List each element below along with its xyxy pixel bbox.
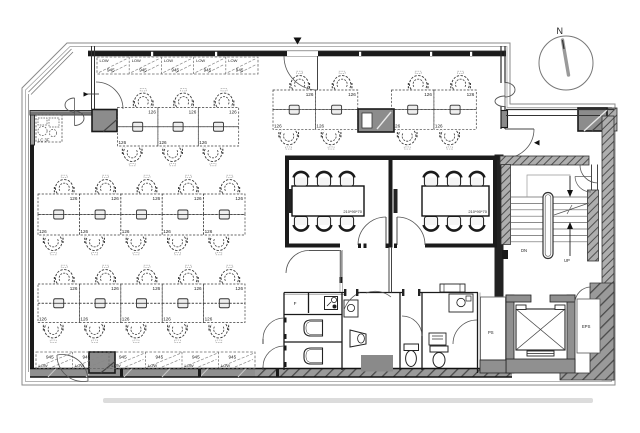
- svg-text:126: 126: [122, 317, 130, 322]
- svg-text:126: 126: [306, 92, 314, 97]
- svg-text:126: 126: [205, 317, 213, 322]
- svg-text:N: N: [557, 26, 564, 36]
- svg-text:LOW: LOW: [221, 363, 230, 368]
- svg-text:LOW: LOW: [196, 58, 205, 63]
- svg-text:LOW: LOW: [185, 363, 194, 368]
- svg-text:LOW: LOW: [112, 363, 121, 368]
- svg-text:126: 126: [205, 229, 213, 234]
- svg-text:DN: DN: [521, 248, 527, 253]
- svg-text:126: 126: [119, 140, 127, 145]
- svg-text:PS: PS: [488, 330, 494, 335]
- svg-text:LOW: LOW: [100, 58, 109, 63]
- svg-text:945: 945: [119, 355, 127, 360]
- svg-text:LOW: LOW: [132, 58, 141, 63]
- svg-text:126: 126: [163, 317, 171, 322]
- svg-text:126: 126: [348, 92, 356, 97]
- svg-text:EPS: EPS: [582, 324, 591, 329]
- svg-text:945: 945: [107, 68, 115, 73]
- svg-text:945: 945: [139, 68, 147, 73]
- svg-text:126: 126: [229, 110, 237, 115]
- svg-text:945: 945: [236, 68, 244, 73]
- svg-text:126: 126: [235, 196, 243, 201]
- svg-text:945: 945: [229, 355, 237, 360]
- svg-text:126: 126: [80, 229, 88, 234]
- svg-text:945: 945: [171, 68, 179, 73]
- svg-text:126: 126: [435, 123, 443, 128]
- svg-text:945: 945: [204, 68, 212, 73]
- svg-text:UP: UP: [564, 258, 570, 263]
- svg-text:126: 126: [159, 140, 167, 145]
- svg-text:126: 126: [153, 286, 161, 291]
- svg-text:126: 126: [111, 286, 119, 291]
- svg-text:945: 945: [46, 355, 54, 360]
- svg-text:126: 126: [189, 110, 197, 115]
- svg-text:F: F: [294, 301, 297, 306]
- svg-text:LOW: LOW: [228, 58, 237, 63]
- svg-text:126: 126: [199, 140, 207, 145]
- svg-text:210*90*70: 210*90*70: [468, 209, 487, 214]
- svg-text:126: 126: [70, 196, 78, 201]
- svg-text:126: 126: [80, 317, 88, 322]
- svg-text:LOW: LOW: [164, 58, 173, 63]
- svg-text:945: 945: [156, 355, 164, 360]
- svg-text:LOW: LOW: [148, 363, 157, 368]
- svg-text:126: 126: [148, 110, 156, 115]
- svg-text:126: 126: [194, 196, 202, 201]
- svg-text:210*90*70: 210*90*70: [343, 209, 362, 214]
- svg-text:126: 126: [153, 196, 161, 201]
- svg-text:126: 126: [467, 92, 475, 97]
- svg-text:126: 126: [274, 123, 282, 128]
- svg-text:LC 3F: LC 3F: [38, 138, 50, 143]
- svg-text:126: 126: [39, 229, 47, 234]
- svg-text:126: 126: [163, 229, 171, 234]
- svg-text:126: 126: [39, 317, 47, 322]
- svg-text:126: 126: [424, 92, 432, 97]
- svg-text:126: 126: [235, 286, 243, 291]
- svg-text:LOW: LOW: [39, 363, 48, 368]
- svg-text:126: 126: [70, 286, 78, 291]
- svg-text:126: 126: [111, 196, 119, 201]
- svg-text:945: 945: [83, 355, 91, 360]
- svg-text:945: 945: [192, 355, 200, 360]
- svg-text:126: 126: [316, 123, 324, 128]
- svg-text:126: 126: [122, 229, 130, 234]
- svg-text:126: 126: [194, 286, 202, 291]
